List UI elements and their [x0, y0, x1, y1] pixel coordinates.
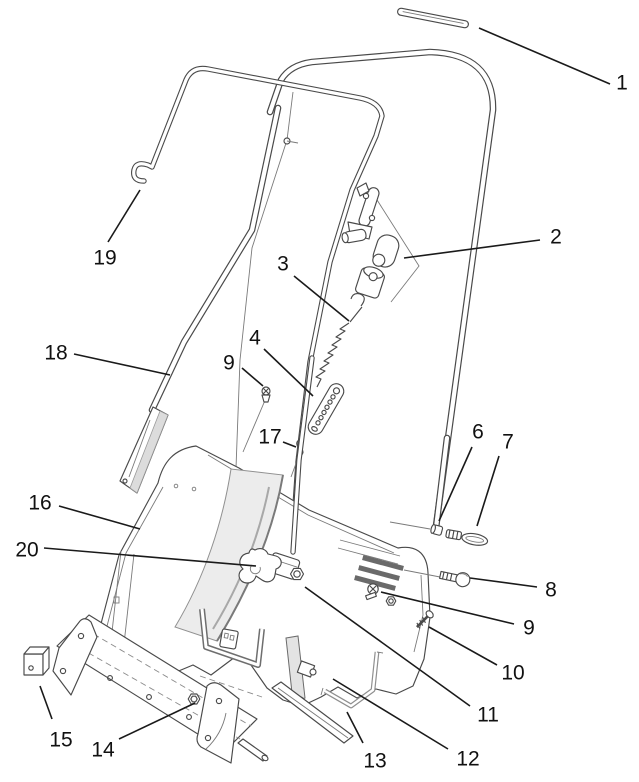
lower-handle-tube — [152, 108, 278, 410]
cable-end — [445, 529, 488, 547]
exploded-parts-diagram: 1234678910111213141516171819209 — [0, 0, 639, 782]
part-label-16: 16 — [28, 492, 51, 515]
leader-line-16 — [59, 506, 140, 529]
part-label-12: 12 — [456, 748, 479, 771]
leader-line-1 — [479, 28, 610, 84]
hex-nut-small — [386, 597, 396, 605]
part-label-20: 20 — [15, 539, 38, 562]
part-label-17: 17 — [258, 426, 281, 449]
part-label-4: 4 — [249, 327, 261, 350]
spacer-box — [24, 647, 49, 675]
leader-line-19 — [108, 190, 140, 242]
shaft-rod — [238, 739, 269, 762]
part-label-2: 2 — [550, 226, 562, 249]
part-label-11: 11 — [477, 704, 499, 727]
leader-line-10 — [429, 627, 497, 665]
cable-bolt-left — [262, 387, 270, 402]
part-label-13: 13 — [363, 750, 386, 773]
hex-nut-14 — [188, 694, 200, 704]
hex-bolt — [439, 568, 471, 588]
cap-nut — [430, 524, 443, 536]
leader-line-17 — [283, 442, 296, 447]
trunnion-parts — [355, 232, 402, 299]
adjuster-plate — [306, 381, 347, 437]
part-label-19: 19 — [93, 247, 116, 270]
part-label-10: 10 — [501, 662, 524, 685]
part-label-6: 6 — [472, 421, 484, 444]
diagram-canvas: 1234678910111213141516171819209 — [0, 0, 639, 782]
part-label-18: 18 — [44, 342, 67, 365]
housing-latch-detail — [220, 629, 239, 650]
leader-line-15 — [40, 686, 52, 719]
part-label-8: 8 — [545, 579, 557, 602]
part-label-14: 14 — [91, 739, 115, 762]
leader-line-4 — [264, 349, 313, 396]
part-label-9-left: 9 — [223, 352, 235, 375]
flange-nut — [291, 568, 304, 579]
part-label-1: 1 — [616, 72, 628, 95]
handle-grip-strip — [397, 8, 469, 29]
leader-line-9-left — [242, 368, 263, 386]
part-label-15: 15 — [49, 729, 72, 752]
leader-line-7 — [477, 456, 499, 526]
leader-line-8 — [470, 578, 537, 587]
part-label-9-right: 9 — [523, 617, 535, 640]
leader-line-18 — [74, 354, 170, 375]
part-label-7: 7 — [502, 431, 514, 454]
part-label-3: 3 — [277, 253, 289, 276]
